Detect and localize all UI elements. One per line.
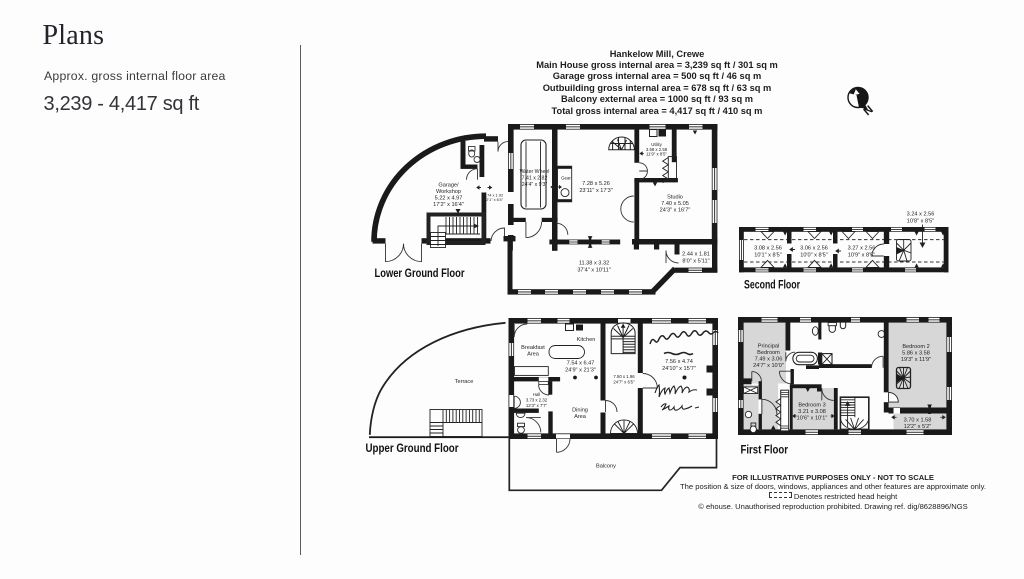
svg-text:3.27 x 2.56: 3.27 x 2.56 xyxy=(848,246,876,252)
svg-text:24'4" x 9'3": 24'4" x 9'3" xyxy=(522,182,548,188)
svg-text:Terrace: Terrace xyxy=(455,379,474,385)
svg-text:3.08 x 2.56: 3.08 x 2.56 xyxy=(754,246,782,252)
svg-text:7.28 x 5.26: 7.28 x 5.26 xyxy=(582,181,610,187)
svg-text:17'2" x 16'4": 17'2" x 16'4" xyxy=(433,202,464,208)
svg-text:Balcony: Balcony xyxy=(596,464,616,470)
svg-text:Garage/: Garage/ xyxy=(438,183,459,189)
svg-text:7.54 x 6.47: 7.54 x 6.47 xyxy=(567,361,595,367)
svg-text:Breakfast: Breakfast xyxy=(521,345,545,351)
svg-text:10'8" x 8'5": 10'8" x 8'5" xyxy=(907,218,935,224)
svg-text:24'10" x 15'7": 24'10" x 15'7" xyxy=(662,366,696,372)
svg-text:Bedroom 3: Bedroom 3 xyxy=(798,403,825,409)
svg-text:5.22 x 4.97: 5.22 x 4.97 xyxy=(435,196,463,202)
svg-text:3.24 x 2.56: 3.24 x 2.56 xyxy=(907,212,935,218)
svg-text:7.50 x 1.96: 7.50 x 1.96 xyxy=(613,374,635,379)
svg-text:10'1" x 8'5": 10'1" x 8'5" xyxy=(754,252,782,258)
svg-text:24'9" x 21'3": 24'9" x 21'3" xyxy=(565,368,596,374)
svg-text:23'11" x 17'3": 23'11" x 17'3" xyxy=(579,188,612,194)
svg-text:10'6" x 10'1": 10'6" x 10'1" xyxy=(797,416,828,422)
svg-text:3.73 x 2.32: 3.73 x 2.32 xyxy=(526,398,548,403)
svg-text:Upper Ground Floor: Upper Ground Floor xyxy=(366,441,459,455)
svg-text:Hall: Hall xyxy=(533,392,540,397)
svg-text:24'7" x 10'0": 24'7" x 10'0" xyxy=(753,363,784,369)
svg-text:24'3" x 16'7": 24'3" x 16'7" xyxy=(660,208,691,214)
svg-text:7.41 x 2.82: 7.41 x 2.82 xyxy=(522,176,548,182)
svg-text:11'9" x 8'5": 11'9" x 8'5" xyxy=(646,152,667,157)
svg-text:12'2" x 5'2": 12'2" x 5'2" xyxy=(904,424,932,430)
svg-text:Water Wheel: Water Wheel xyxy=(520,169,550,175)
svg-text:10'9" x 8'5": 10'9" x 8'5" xyxy=(848,252,876,258)
svg-text:7.56 x 4.74: 7.56 x 4.74 xyxy=(665,359,693,365)
svg-text:3.06 x 2.56: 3.06 x 2.56 xyxy=(800,246,828,252)
svg-text:10'0" x 8'5": 10'0" x 8'5" xyxy=(800,252,828,258)
svg-text:19'3" x 11'9": 19'3" x 11'9" xyxy=(901,357,931,363)
svg-text:Lower Ground Floor: Lower Ground Floor xyxy=(375,266,465,280)
svg-text:First Floor: First Floor xyxy=(741,443,789,457)
svg-text:Area: Area xyxy=(527,352,540,358)
svg-text:11.38 x 3.32: 11.38 x 3.32 xyxy=(579,261,609,267)
svg-text:Second Floor: Second Floor xyxy=(744,278,800,292)
svg-text:37'4" x 10'11": 37'4" x 10'11" xyxy=(577,268,610,274)
svg-text:12'3" x 7'7": 12'3" x 7'7" xyxy=(526,403,548,408)
svg-text:7.49 x 3.06: 7.49 x 3.06 xyxy=(755,357,783,363)
svg-text:Gear: Gear xyxy=(561,176,571,181)
svg-text:2.44 x 1.81: 2.44 x 1.81 xyxy=(682,252,710,258)
svg-text:3.21 x 3.08: 3.21 x 3.08 xyxy=(798,409,826,415)
svg-text:Area: Area xyxy=(574,414,587,420)
svg-text:8'0" x 5'11": 8'0" x 5'11" xyxy=(682,258,709,264)
svg-text:Bedroom 2: Bedroom 2 xyxy=(902,344,929,350)
svg-text:Studio: Studio xyxy=(667,195,683,201)
svg-text:Principal: Principal xyxy=(758,344,779,350)
svg-text:3.70 x 1.58: 3.70 x 1.58 xyxy=(904,418,932,424)
svg-text:24'7" x 6'5": 24'7" x 6'5" xyxy=(613,380,635,385)
svg-text:Dining: Dining xyxy=(572,408,588,414)
svg-text:Bedroom: Bedroom xyxy=(757,350,780,356)
svg-text:7.40 x 5.05: 7.40 x 5.05 xyxy=(661,201,689,207)
svg-text:5.86 x 3.58: 5.86 x 3.58 xyxy=(902,351,930,357)
svg-text:22'1" x 6'4": 22'1" x 6'4" xyxy=(484,197,504,202)
svg-text:Kitchen: Kitchen xyxy=(577,337,596,343)
svg-text:Workshop: Workshop xyxy=(436,189,461,195)
